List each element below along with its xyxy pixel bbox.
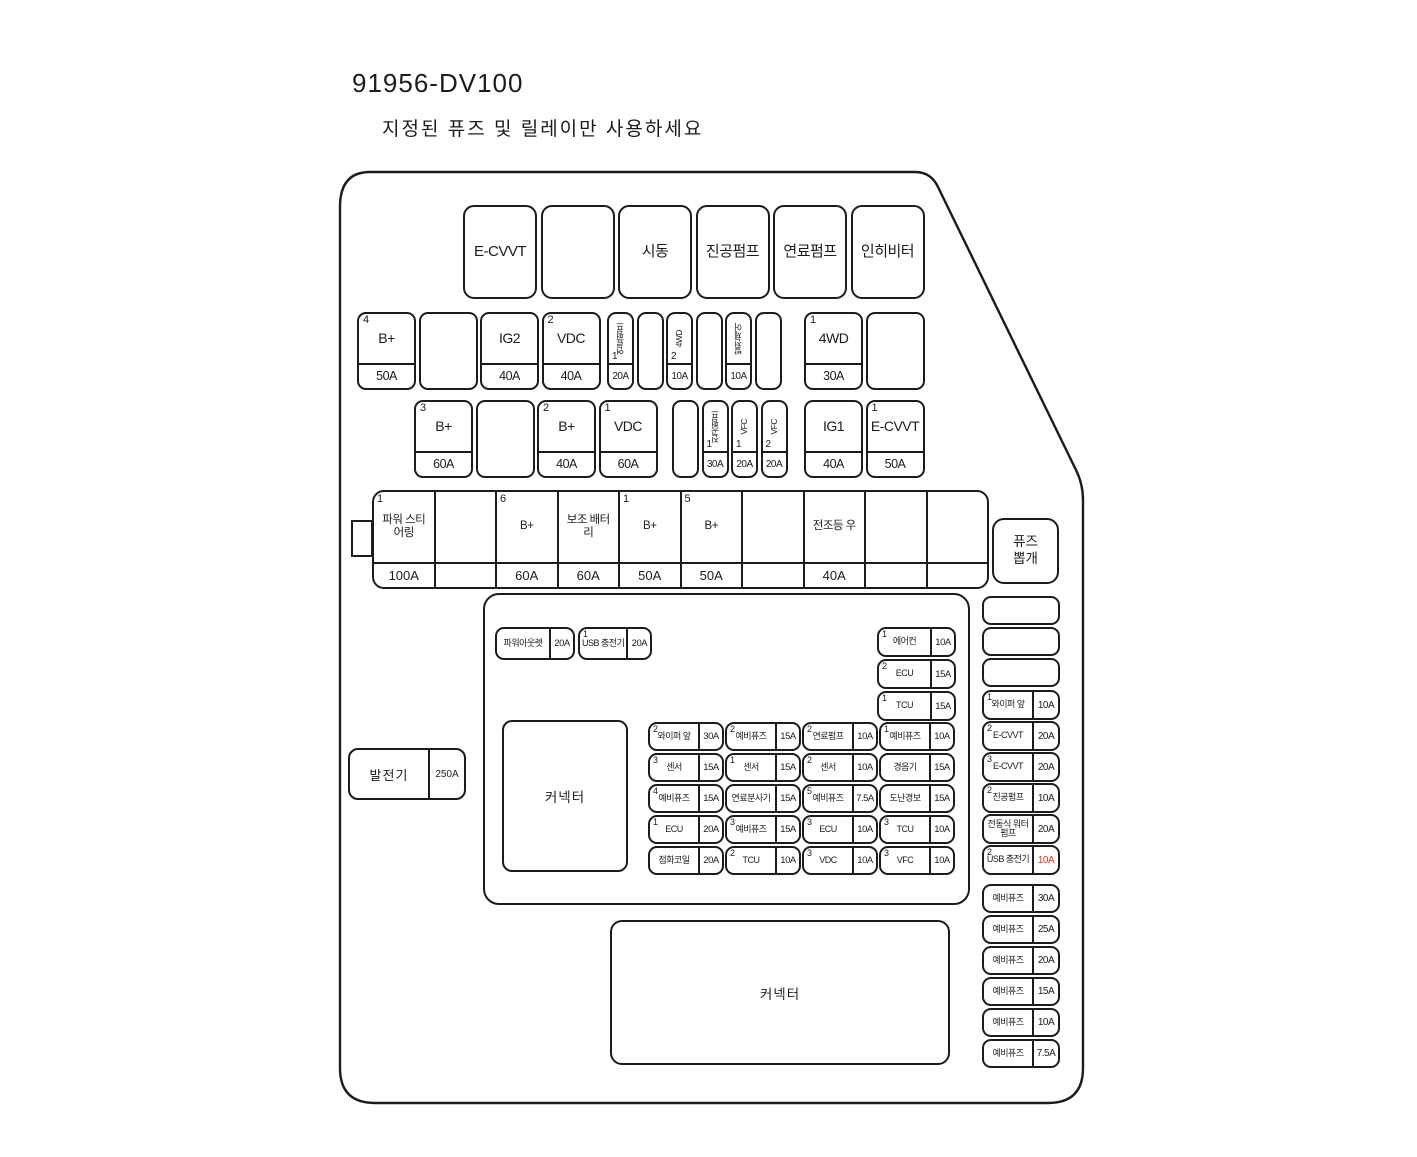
fuse-index: 2 [987, 785, 992, 795]
fuse-index: 2 [766, 439, 772, 450]
fuse-index: 5 [685, 493, 691, 505]
fuse-slot [926, 492, 988, 587]
spare-fuse-box: 예비퓨즈 7.5A [982, 1039, 1060, 1068]
fuse-label: USB 충전기 [582, 639, 624, 648]
fuse-box: 3 VFC 10A [879, 846, 955, 875]
fuse-amp: 10A [852, 755, 876, 780]
relay-row: E-CVVT 시동 진공펌프 연료펌프 인히비터 [463, 205, 925, 299]
fuse-amp: 10A [852, 724, 876, 749]
fuse-box: 1 4WD 30A [804, 312, 863, 390]
alternator-amp: 250A [428, 750, 464, 798]
fuse-label: B+ [688, 520, 734, 533]
fuse-label: VDC [819, 856, 837, 865]
empty-fuse-slot [982, 596, 1060, 625]
fuse-amp: 10A [727, 363, 750, 388]
center-top-fuses: 파워아웃렛 20A 1 USB 충전기 20A [495, 627, 652, 660]
fuse-label: E-CVVT [993, 762, 1023, 771]
fuse-box: 3 B+ 60A [414, 400, 473, 478]
fuse-label: E-CVVT [993, 731, 1023, 740]
fuse-label: 파워아웃렛 [504, 639, 543, 648]
fuse-label: 경음기 [893, 763, 916, 772]
fuse-row3-mid: 1 진공펌프 30A 1 VFC 20A 2 VFC 20A [672, 400, 788, 478]
fuse-amp: 20A [733, 451, 756, 476]
fuse-amp: 20A [626, 629, 650, 658]
fuse-label: 도난경보 [889, 794, 920, 803]
fuse-box: 2 예비퓨즈 15A [725, 722, 801, 751]
right-panel-empty-slots [982, 596, 1060, 687]
fuse-amp: 10A [852, 817, 876, 842]
relay-label: 인히비터 [861, 244, 914, 260]
fuse-box: IG1 40A [804, 400, 863, 478]
fuse-label: 연료분사기 [732, 794, 771, 803]
fuse-index: 1 [623, 493, 629, 505]
spare-fuse-box: 예비퓨즈 10A [982, 1008, 1060, 1037]
fuse-index: 2 [807, 755, 812, 765]
fuse-box: 1 진공펌프 30A [702, 400, 729, 478]
grid-column-2: 2 예비퓨즈 15A 1 센서 15A 연료분사기 15A [725, 722, 801, 875]
relay-box: 인히비터 [851, 205, 925, 299]
fuse-box: 점화코일 20A [648, 846, 724, 875]
grid-column-1: 2 와이퍼 앞 30A 3 센서 15A 4 예비퓨즈 15A [648, 722, 724, 875]
fuse-index: 5 [807, 786, 812, 796]
fuse-index: 1 [810, 315, 816, 326]
fuse-index: 2 [543, 403, 549, 414]
fuse-amp: 7.5A [1032, 1041, 1058, 1066]
fuse-amp: 15A [775, 755, 799, 780]
fuse-box: 4 B+ 50A [357, 312, 416, 390]
fuse-box: 4 예비퓨즈 15A [648, 784, 724, 813]
fuse-index: 4 [363, 315, 369, 326]
fuse-index: 1 [884, 724, 889, 734]
fuse-index: 2 [671, 351, 677, 362]
fuse-amp: 10A [775, 848, 799, 873]
fuse-box: 3 VDC 10A [802, 846, 878, 875]
spare-fuses: 예비퓨즈 30A 예비퓨즈 25A 예비퓨즈 20A 예비퓨즈 15A [982, 884, 1060, 1068]
fuse-amp: 60A [601, 451, 656, 476]
connector-label: 커넥터 [760, 983, 800, 1003]
fuse-label: 보조 배터리 [565, 514, 611, 540]
empty-fuse-slot [982, 658, 1060, 687]
fuse-amp: 25A [1032, 917, 1058, 942]
fuse-amp: 15A [775, 724, 799, 749]
fuse-amp: 10A [929, 848, 953, 873]
fuse-index: 3 [884, 848, 889, 858]
fuse-box: 3 E-CVVT 20A [982, 752, 1060, 782]
alternator-fuse: 발전기 250A [348, 748, 466, 800]
fuse-amp: 20A [698, 817, 722, 842]
fuse-label: ECU [665, 825, 683, 834]
fuse-amp: 10A [929, 724, 953, 749]
fuse-box: IG2 40A [480, 312, 539, 390]
fuse-box: 2 ECU 15A [877, 659, 956, 689]
fuse-box: 1 E-CVVT 50A [866, 400, 925, 478]
fuse-label: VFC [897, 856, 914, 865]
fuse-label: 센서 [743, 763, 759, 772]
fuse-index: 1 [583, 629, 588, 639]
fuse-index: 3 [730, 817, 735, 827]
fuse-index: 2 [548, 315, 554, 326]
fuse-box: 1 TCU 15A [877, 691, 956, 721]
fuse-index: 1 [736, 439, 742, 450]
fuse-label: 예비퓨즈 [992, 1018, 1023, 1027]
fuse-index: 2 [882, 661, 887, 671]
fuse-label: 예비퓨즈 [992, 925, 1023, 934]
fuse-amp: 60A [416, 451, 471, 476]
fuse-index: 1 [882, 629, 887, 639]
fuse-row3-left: 3 B+ 60A 2 B+ 40A 1 VDC [414, 400, 658, 478]
fuse-index: 3 [807, 817, 812, 827]
right-panel-fuses: 1 와이퍼 앞 10A 2 E-CVVT 20A 3 E-CVVT 20A 2 [982, 690, 1060, 875]
fuse-amp: 20A [549, 629, 573, 658]
fuse-box: 도난경보 15A [879, 784, 955, 813]
fuse-label: 점화코일 [658, 856, 689, 865]
fuse-slot [864, 492, 926, 587]
fuse-index: 2 [987, 723, 992, 733]
fuse-label: VDC [557, 331, 585, 346]
fuse-box-diagram: 91956-DV100 지정된 퓨즈 및 릴레이만 사용하세요 E-CVVT 시… [0, 0, 1417, 1157]
fuse-amp: 15A [929, 786, 953, 811]
fuse-box: 2 E-CVVT 20A [982, 721, 1060, 751]
fuse-label: 예비퓨즈 [992, 956, 1023, 965]
fuse-amp: 10A [1032, 785, 1058, 811]
fuse-box [419, 312, 478, 390]
fuse-index: 2 [653, 724, 658, 734]
fuse-box: 경음기 15A [879, 753, 955, 782]
fuse-box: 연료분사기 15A [725, 784, 801, 813]
fuse-index: 3 [807, 848, 812, 858]
alternator-label: 발전기 [350, 750, 428, 798]
fuse-box: 전동식 워터펌프 20A [982, 814, 1060, 844]
fuse-amp: 40A [482, 363, 537, 388]
fuse-label: 예비퓨즈 [992, 987, 1023, 996]
fuse-slot [741, 492, 803, 587]
fuse-index: 2 [987, 847, 992, 857]
fuse-box: 5 예비퓨즈 7.5A [802, 784, 878, 813]
fuse-amp: 40A [805, 562, 865, 587]
fuse-index: 3 [653, 755, 658, 765]
fuse-box: 1 연료펌프 20A [607, 312, 634, 390]
fuse-amp: 20A [763, 451, 786, 476]
fuse-index: 1 [653, 817, 658, 827]
fuse-amp: 10A [930, 629, 954, 655]
fuse-label: 연료펌프 [616, 323, 625, 355]
fuse-index: 1 [377, 493, 383, 505]
fuse-label: 예비퓨즈 [735, 825, 766, 834]
fuse-slot: 전조등 우 40A [803, 492, 865, 587]
fuse-box: 2 USB 충전기 10A [982, 845, 1060, 875]
fuse-index: 2 [730, 724, 735, 734]
fuse-amp: 15A [775, 786, 799, 811]
relay-label: E-CVVT [474, 244, 526, 260]
fuse-row2-left: 4 B+ 50A IG2 40A 2 VDC [357, 312, 601, 390]
fuse-row2-right: 1 4WD 30A [804, 312, 925, 390]
fuse-amp: 50A [868, 451, 923, 476]
fuse-amp: 20A [609, 363, 632, 388]
fuse-slot: 6 B+ 60A [495, 492, 557, 587]
fuse-amp: 7.5A [852, 786, 876, 811]
fuse-index: 1 [987, 692, 992, 702]
fuse-label: IG1 [823, 419, 844, 434]
fuse-index: 4 [653, 786, 658, 796]
fuse-slot: 5 B+ 50A [680, 492, 742, 587]
fuse-amp: 30A [698, 724, 722, 749]
fuse-box [476, 400, 535, 478]
fuse-amp: 15A [930, 693, 954, 719]
fuse-label: VFC [770, 419, 779, 435]
fuse-box: 1 ECU 20A [648, 815, 724, 844]
fuse-label: 예비퓨즈 [889, 732, 920, 741]
fuse-amp: 60A [559, 562, 619, 587]
fuse-amp: 50A [359, 363, 414, 388]
center-right-fuses: 1 에어컨 10A 2 ECU 15A 1 TCU 15A [877, 627, 956, 721]
fuse-puller-label-line2: 뽑개 [1013, 551, 1038, 568]
fuse-amp: 15A [698, 755, 722, 780]
fuse-amp: 10A [1032, 692, 1058, 718]
fuse-box: 3 TCU 10A [879, 815, 955, 844]
fuse-amp: 40A [544, 363, 599, 388]
fuse-index: 2 [807, 724, 812, 734]
fuse-index: 1 [730, 755, 735, 765]
fuse-amp: 15A [698, 786, 722, 811]
fuse-box [637, 312, 664, 390]
fuse-amp: 30A [1032, 886, 1058, 911]
fuse-index: 1 [605, 403, 611, 414]
fuse-box: 3 ECU 10A [802, 815, 878, 844]
fuse-amp: 30A [806, 363, 861, 388]
spare-fuse-box: 예비퓨즈 20A [982, 946, 1060, 975]
relay-label: 연료펌프 [783, 244, 836, 260]
fuse-amp: 50A [682, 562, 742, 587]
bar-side-tab [351, 520, 373, 557]
fuse-box: 3 예비퓨즈 15A [725, 815, 801, 844]
fuse-slot: 1 파워 스티어링 100A [374, 492, 434, 587]
fuse-label: TCU [743, 856, 760, 865]
fuse-label: 진공펌프 [992, 793, 1023, 802]
fuse-label: ECU [896, 669, 914, 678]
fuse-label: 진공펌프 [711, 411, 720, 443]
fuse-box: 2 연료펌프 10A [802, 722, 878, 751]
fuse-amp: 40A [806, 451, 861, 476]
fuse-amp: 60A [497, 562, 557, 587]
fuse-box: 2 VDC 40A [542, 312, 601, 390]
fuse-amp: 10A [1032, 847, 1058, 873]
fuse-label: 예비퓨즈 [812, 794, 843, 803]
fuse-amp [866, 562, 926, 587]
fuse-label: B+ [558, 419, 575, 434]
part-number-title: 91956-DV100 [352, 68, 523, 99]
fuse-amp: 10A [929, 817, 953, 842]
fuse-label: VDC [614, 419, 642, 434]
fuse-puller-label-line1: 퓨즈 [1013, 534, 1038, 551]
fuse-label: 예비퓨즈 [735, 732, 766, 741]
fuse-slot: 보조 배터리 60A [557, 492, 619, 587]
fuse-box: 1 VFC 20A [731, 400, 758, 478]
fuse-amp: 20A [698, 848, 722, 873]
fuse-box: 1 예비퓨즈 10A [879, 722, 955, 751]
fuse-amp [928, 562, 988, 587]
connector-box-upper: 커넥터 [502, 720, 628, 872]
fuse-amp: 15A [1032, 979, 1058, 1004]
fuse-index: 1 [882, 693, 887, 703]
fuse-box: 발전제어 10A [725, 312, 752, 390]
fuse-label: 센서 [666, 763, 682, 772]
fuse-amp: 40A [539, 451, 594, 476]
empty-fuse-slot [982, 627, 1060, 656]
fuse-index: 3 [884, 817, 889, 827]
fuse-amp: 20A [1032, 723, 1058, 749]
fuse-box: 1 에어컨 10A [877, 627, 956, 657]
connector-label: 커넥터 [545, 786, 585, 806]
fuse-label: ECU [819, 825, 837, 834]
fuse-label: IG2 [499, 331, 520, 346]
fuse-amp: 15A [930, 661, 954, 687]
relay-label: 진공펌프 [706, 244, 759, 260]
fuse-label: 발전제어 [734, 323, 743, 355]
connector-box-lower: 커넥터 [610, 920, 950, 1065]
fuse-puller-box: 퓨즈 뽑개 [992, 518, 1059, 584]
fuse-slot [434, 492, 496, 587]
fuse-label: TCU [896, 701, 913, 710]
fuse-index: 2 [730, 848, 735, 858]
fuse-amp: 20A [1032, 948, 1058, 973]
relay-box: 시동 [618, 205, 692, 299]
fuse-label: B+ [435, 419, 452, 434]
fuse-box [696, 312, 723, 390]
fuse-box: 3 센서 15A [648, 753, 724, 782]
relay-box: 진공펌프 [696, 205, 770, 299]
fuse-box [755, 312, 782, 390]
fuse-box: 1 센서 15A [725, 753, 801, 782]
fuse-box: 2 VFC 20A [761, 400, 788, 478]
fuse-label: 와이퍼 앞 [657, 732, 690, 741]
center-fuse-grid: 2 와이퍼 앞 30A 3 센서 15A 4 예비퓨즈 15A [648, 722, 955, 875]
spare-fuse-box: 예비퓨즈 15A [982, 977, 1060, 1006]
fuse-label: 4WD [819, 331, 849, 346]
fuse-box: 2 진공펌프 10A [982, 783, 1060, 813]
fuse-label: 예비퓨즈 [992, 1049, 1023, 1058]
fuse-label: 연료펌프 [812, 732, 843, 741]
relay-box: E-CVVT [463, 205, 537, 299]
fuse-label: B+ [504, 520, 550, 533]
fuse-box: 2 와이퍼 앞 30A [648, 722, 724, 751]
fuse-label: B+ [378, 331, 395, 346]
relay-label: 시동 [642, 244, 669, 260]
fuse-box: 2 TCU 10A [725, 846, 801, 875]
fuse-label: 와이퍼 앞 [991, 700, 1024, 709]
fuse-index: 3 [420, 403, 426, 414]
fuse-amp: 100A [374, 562, 434, 587]
fuse-index: 3 [987, 754, 992, 764]
grid-column-4: 1 예비퓨즈 10A 경음기 15A 도난경보 15A [879, 722, 955, 875]
fuse-box: 1 와이퍼 앞 10A [982, 690, 1060, 720]
fuse-box: 파워아웃렛 20A [495, 627, 575, 660]
fuse-box [672, 400, 699, 478]
fuse-row3-right: IG1 40A 1 E-CVVT 50A [804, 400, 925, 478]
grid-column-3: 2 연료펌프 10A 2 센서 10A 5 예비퓨즈 7.5A [802, 722, 878, 875]
fuse-index: 1 [872, 403, 878, 414]
fuse-label: 4WD [675, 330, 684, 347]
fuse-label: 예비퓨즈 [992, 894, 1023, 903]
fuse-amp: 20A [1032, 754, 1058, 780]
relay-box [541, 205, 615, 299]
fuse-label: 전동식 워터펌프 [986, 820, 1030, 839]
fuse-label: 센서 [820, 763, 836, 772]
fuse-box: 2 4WD 10A [666, 312, 693, 390]
caution-subtitle: 지정된 퓨즈 및 릴레이만 사용하세요 [382, 114, 703, 141]
fuse-box: 2 센서 10A [802, 753, 878, 782]
fuse-row2-mid: 1 연료펌프 20A 2 4WD 10A [607, 312, 782, 390]
fuse-label: 예비퓨즈 [658, 794, 689, 803]
fuse-label: E-CVVT [871, 419, 919, 434]
relay-box: 연료펌프 [773, 205, 847, 299]
fuse-box: 2 B+ 40A [537, 400, 596, 478]
fuse-amp: 20A [1032, 816, 1058, 842]
main-fuse-bar: 1 파워 스티어링 100A 6 B+ 60A 보조 [372, 490, 989, 589]
fuse-label: TCU [897, 825, 914, 834]
fuse-amp: 15A [929, 755, 953, 780]
fuse-index: 6 [500, 493, 506, 505]
fuse-label: B+ [627, 520, 673, 533]
fuse-amp [743, 562, 803, 587]
spare-fuse-box: 예비퓨즈 25A [982, 915, 1060, 944]
fuse-amp: 50A [620, 562, 680, 587]
fuse-label: 전조등 우 [811, 520, 857, 533]
fuse-slot: 1 B+ 50A [618, 492, 680, 587]
fuse-amp [436, 562, 496, 587]
fuse-label: VFC [740, 419, 749, 435]
fuse-box: 1 VDC 60A [599, 400, 658, 478]
spare-fuse-box: 예비퓨즈 30A [982, 884, 1060, 913]
fuse-amp: 10A [1032, 1010, 1058, 1035]
fuse-amp: 10A [852, 848, 876, 873]
fuse-label: 파워 스티어링 [381, 514, 427, 540]
fuse-amp: 30A [704, 451, 727, 476]
fuse-box: 1 USB 충전기 20A [578, 627, 652, 660]
fuse-label: USB 충전기 [987, 855, 1029, 864]
fuse-box [866, 312, 925, 390]
fuse-label: 에어컨 [893, 637, 916, 646]
fuse-amp: 10A [668, 363, 691, 388]
fuse-amp: 15A [775, 817, 799, 842]
